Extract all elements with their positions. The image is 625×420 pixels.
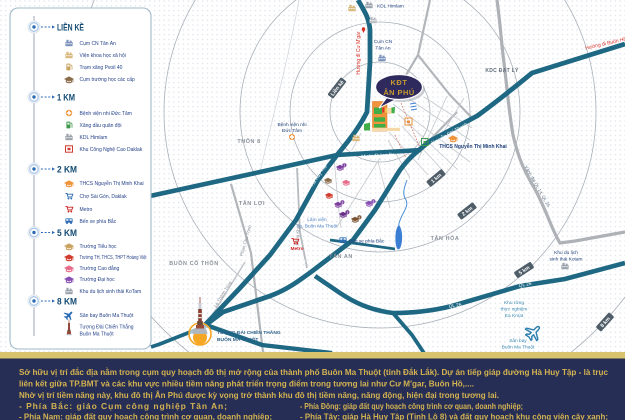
svg-text:Khu rừng: Khu rừng <box>504 300 524 306</box>
svg-text:Metro: Metro <box>290 246 303 252</box>
svg-text:2: 2 <box>342 200 344 204</box>
svg-text:KĐT: KĐT <box>391 78 408 87</box>
svg-text:KDL Himlam: KDL Himlam <box>80 135 108 141</box>
svg-text:6: 6 <box>359 215 361 219</box>
svg-text:1: 1 <box>344 163 346 167</box>
svg-text:Khu du lịch: Khu du lịch <box>554 250 578 256</box>
svg-text:Bến xe phía Bắc: Bến xe phía Bắc <box>349 238 385 245</box>
svg-text:Trường Tiểu học: Trường Tiểu học <box>80 243 118 250</box>
svg-text:Viện khoa học xã hội: Viện khoa học xã hội <box>80 53 126 59</box>
svg-text:Đức Tâm: Đức Tâm <box>282 128 302 134</box>
svg-text:Cụm CN Tân An: Cụm CN Tân An <box>80 41 117 47</box>
svg-text:Sân bay Buôn Ma Thuột: Sân bay Buôn Ma Thuột <box>80 313 134 319</box>
svg-text:Trường TH, THCS, THPT Hoàng Vi: Trường TH, THCS, THPT Hoàng Việt <box>80 255 147 261</box>
svg-text:KDC ĐẠT LÝ: KDC ĐẠT LÝ <box>485 67 519 74</box>
svg-text:sinh thái Kotam: sinh thái Kotam <box>549 257 582 263</box>
svg-text:Ea Kmat: Ea Kmat <box>505 313 524 319</box>
svg-text:8 KM: 8 KM <box>57 297 77 308</box>
svg-text:Bệnh viện nhi Đức Tâm: Bệnh viện nhi Đức Tâm <box>80 111 132 117</box>
svg-text:TÂN AN: TÂN AN <box>329 253 353 260</box>
svg-text:THCS Nguyễn Thị Minh Khai: THCS Nguyễn Thị Minh Khai <box>80 180 144 187</box>
svg-text:THÔN 8: THÔN 8 <box>237 137 260 145</box>
svg-text:Chợ Sài Gòn, Daklak: Chợ Sài Gòn, Daklak <box>80 194 128 200</box>
svg-text:Lâm viên: Lâm viên <box>307 217 327 223</box>
svg-text:Tượng Đài Chiến Thắng: Tượng Đài Chiến Thắng <box>80 324 134 331</box>
svg-text:- Phía Nam: giáp đất quy hoạch: - Phía Nam: giáp đất quy hoạch công trìn… <box>19 412 272 420</box>
svg-text:Hướng đi Cư M'gar: Hướng đi Cư M'gar <box>356 31 362 74</box>
svg-text:THCS Nguyễn Thị Minh Khai: THCS Nguyễn Thị Minh Khai <box>439 143 507 150</box>
svg-text:Buôn Ma Thuột: Buôn Ma Thuột <box>80 332 115 338</box>
svg-text:Khu du lịch sinh thái KoTam: Khu du lịch sinh thái KoTam <box>80 289 142 295</box>
svg-text:Trường Cao đẳng: Trường Cao đẳng <box>80 265 120 272</box>
svg-text:Cụm CN: Cụm CN <box>374 39 393 45</box>
svg-text:5 KM: 5 KM <box>57 228 77 239</box>
svg-text:TÂN LỢI: TÂN LỢI <box>239 200 265 207</box>
svg-text:- Phía Đông: giáp đất quy hoạc: - Phía Đông: giáp đất quy hoạch công trì… <box>300 401 523 411</box>
svg-text:Metro: Metro <box>80 207 93 213</box>
svg-text:Trạm xăng Pvoil 40: Trạm xăng Pvoil 40 <box>80 65 123 71</box>
svg-text:BUÔN CÔ THÔN: BUÔN CÔ THÔN <box>169 259 218 267</box>
svg-text:Xăng dầu quân đội: Xăng dầu quân đội <box>80 123 122 129</box>
svg-text:Bến xe phía Bắc: Bến xe phía Bắc <box>80 218 117 225</box>
svg-text:KDL Himlam: KDL Himlam <box>377 4 404 10</box>
svg-text:1: 1 <box>373 199 375 203</box>
svg-text:Tp. Buôn Ma Thuột: Tp. Buôn Ma Thuột <box>297 224 339 230</box>
svg-text:Bệnh viện nhi: Bệnh viện nhi <box>277 122 306 128</box>
svg-text:3: 3 <box>347 210 349 214</box>
svg-text:thực nghiệm: thực nghiệm <box>501 307 528 313</box>
svg-text:Trường Đại học: Trường Đại học <box>80 277 116 283</box>
svg-text:ÂN PHÚ: ÂN PHÚ <box>383 88 414 97</box>
svg-text:Buôn Ma Thuột: Buôn Ma Thuột <box>502 345 535 351</box>
svg-text:LIỀN KỀ: LIỀN KỀ <box>57 23 84 34</box>
svg-text:1 KM: 1 KM <box>57 93 75 104</box>
svg-text:- Phía Tây: giáp Hà Huy Tập (T: - Phía Tây: giáp Hà Huy Tập (Tỉnh Lộ 8) … <box>300 412 608 420</box>
svg-text:Sân bay: Sân bay <box>509 338 527 344</box>
svg-text:Sở hữu vị trí đắc địa nằm tron: Sở hữu vị trí đắc địa nằm trong cụm quy … <box>19 366 608 377</box>
svg-text:2 KM: 2 KM <box>57 165 77 176</box>
svg-text:liên kết giữa TP.BMT và các kh: liên kết giữa TP.BMT và các khu vực nhiề… <box>19 379 474 389</box>
svg-text:Nhờ vị trí tiềm năng này, khu: Nhờ vị trí tiềm năng này, khu đô thị Ân … <box>19 389 499 400</box>
svg-text:Tân An: Tân An <box>375 46 391 52</box>
svg-text:Cụm trường học các cấp: Cụm trường học các cấp <box>80 77 135 83</box>
svg-text:- Phía Bắc: giáo Cụm công nghi: - Phía Bắc: giáo Cụm công nghiệp Tân An; <box>19 400 227 411</box>
svg-text:TÂN HÒA: TÂN HÒA <box>431 234 460 242</box>
svg-text:Khu Công Nghệ Cao Daklak: Khu Công Nghệ Cao Daklak <box>80 147 143 153</box>
